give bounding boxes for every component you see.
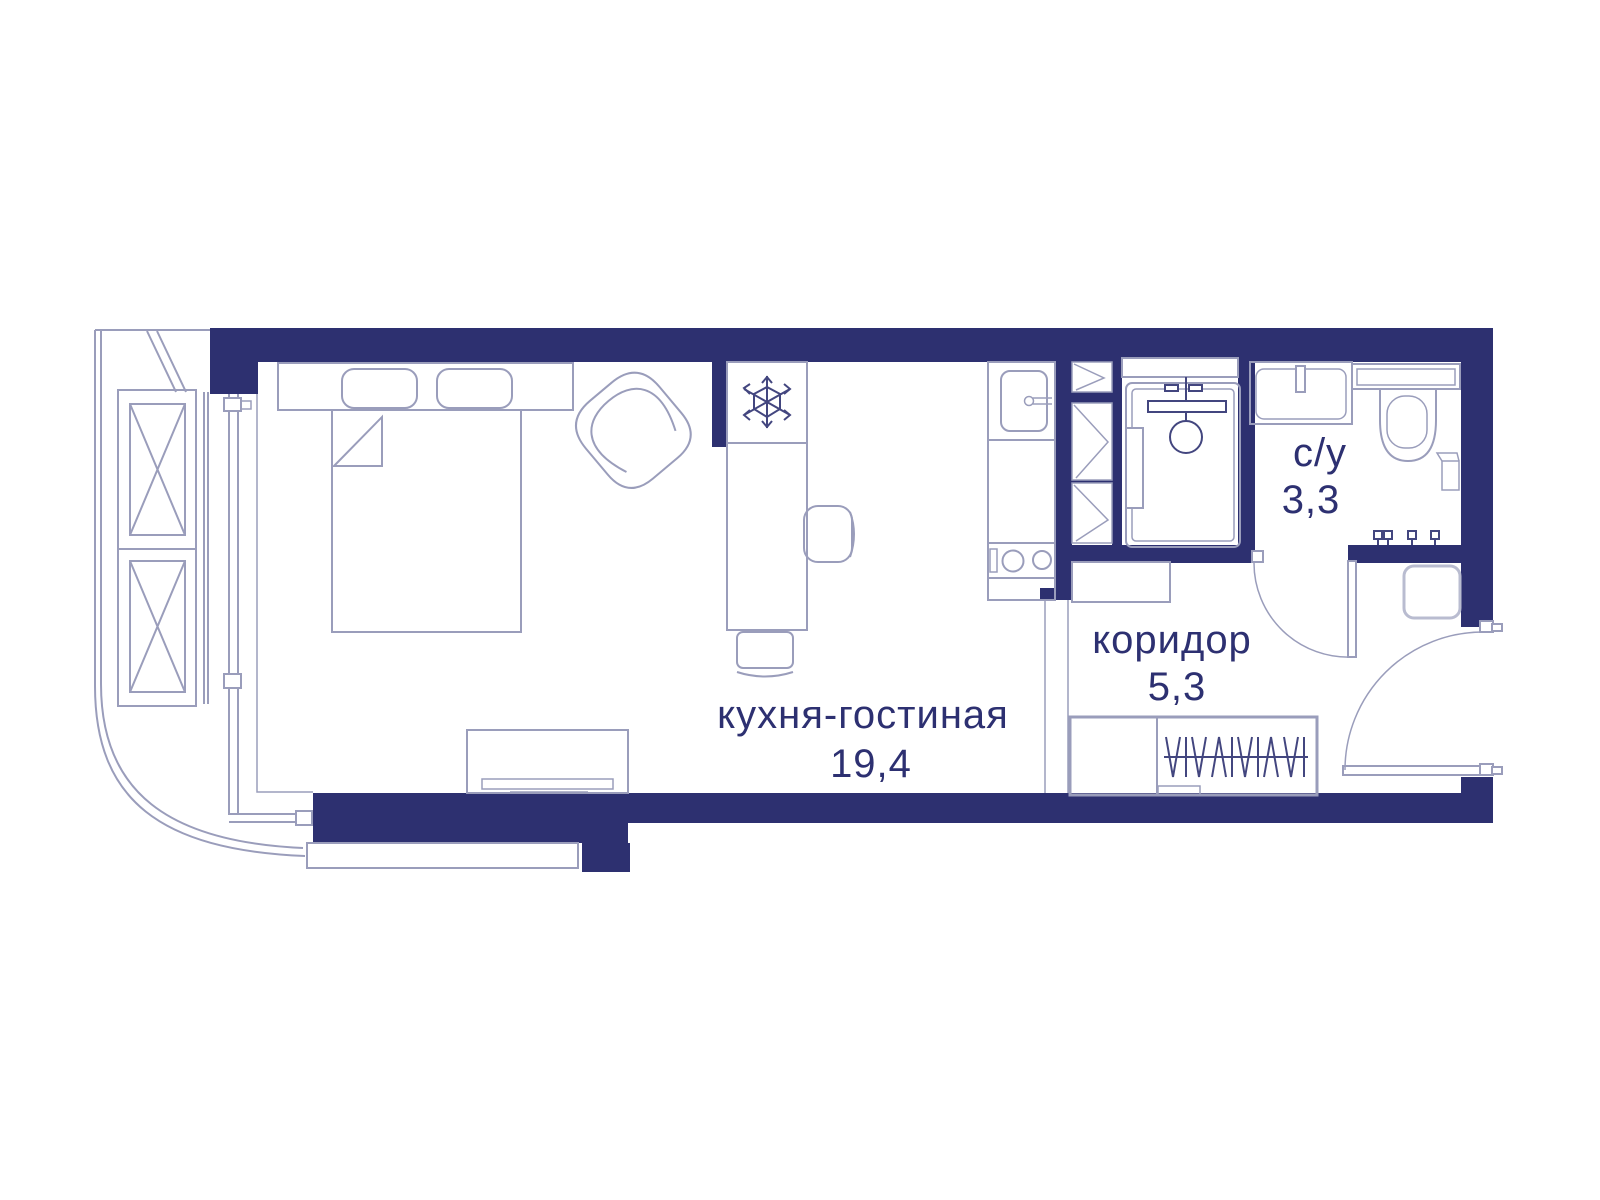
window-glazing-vertical (229, 394, 238, 815)
toilet-tank-inner (1357, 369, 1455, 385)
tv-unit (467, 730, 628, 793)
shaft-band-1 (1072, 392, 1112, 403)
shaft-panel-2-lines (1074, 405, 1108, 478)
island-chair (804, 506, 852, 562)
balcony (95, 330, 305, 856)
entrance-door-hinge-top (1492, 624, 1502, 631)
floor-plan-drawing: кухня-гостиная 19,4 коридор 5,3 с/у 3,3 (0, 0, 1600, 1200)
panoramic-window (224, 394, 313, 825)
bed-mattress (332, 410, 521, 632)
entrance-doormat (1404, 566, 1460, 618)
label-corridor-area: 5,3 (1148, 665, 1207, 709)
window-mullion-mid (224, 674, 241, 688)
window-mullion-top (224, 398, 241, 411)
wall-stub-fridge (712, 362, 727, 447)
corridor (1045, 562, 1460, 795)
shaft-panel-1-lines (1074, 364, 1104, 390)
wall-kitchen (1055, 362, 1072, 600)
pillow-right (437, 369, 512, 408)
label-kitchen-living-area: 19,4 (830, 742, 912, 786)
toilet-seat (1387, 396, 1427, 448)
label-kitchen-living-name: кухня-гостиная (717, 693, 1009, 737)
room-inner-edge-line (257, 394, 313, 792)
shower-bench (1126, 428, 1143, 508)
cooktop-panel (990, 549, 997, 572)
balcony-curve-inner (101, 684, 303, 848)
label-corridor-name: коридор (1092, 618, 1252, 662)
wall-right-upper (1461, 362, 1493, 627)
entrance-door-leaf (1343, 766, 1483, 775)
wall-shaft-right (1112, 362, 1122, 545)
shower-cabin (1122, 358, 1240, 547)
window-handle (241, 401, 251, 409)
corridor-threshold-lines (1045, 600, 1068, 793)
washing-machine (1072, 562, 1170, 602)
service-shaft (1072, 362, 1112, 543)
washbasin-faucet-icon (1296, 366, 1305, 392)
tv-screen (482, 779, 613, 789)
label-bathroom-name: с/у (1293, 431, 1347, 475)
armchair-back (578, 375, 681, 477)
balcony-panel-2-x (130, 561, 185, 692)
wall-top (210, 328, 1493, 362)
window-mullion-end (296, 811, 312, 825)
entrance-door-hinge-bottom (1492, 767, 1502, 774)
island-stool-back (737, 672, 793, 677)
wall-bottom-left (313, 793, 628, 843)
bed (278, 363, 573, 632)
armchair-outline (564, 361, 702, 499)
bed-headboard (278, 363, 573, 410)
shaft-panel-3 (1072, 483, 1112, 543)
armchair (564, 361, 702, 499)
wall-bathroom-bottom-right (1348, 545, 1461, 563)
balcony-panel-1-x (130, 404, 185, 535)
shaft-panel-2 (1072, 403, 1112, 480)
cooktop-burner-1 (1003, 551, 1024, 572)
sink-faucet-lines (1033, 398, 1052, 404)
cooktop-burner-2 (1033, 551, 1051, 569)
wall-bottom (628, 793, 1493, 823)
island-counter (727, 443, 807, 630)
wall-pier-top-left (210, 328, 258, 394)
balcony-inner-rail (204, 392, 208, 704)
bathroom-door-jamb (1252, 551, 1263, 562)
bathroom-door-leaf (1348, 561, 1356, 657)
towel-hook-icons (1374, 531, 1439, 545)
window-glazing-bottom (229, 814, 300, 822)
toilet-paper-holder-icon (1437, 453, 1459, 490)
shaft-panel-3-lines (1074, 485, 1108, 541)
pillow-left (342, 369, 417, 408)
kitchen-island (727, 443, 854, 677)
shower-shelf (1122, 358, 1238, 377)
label-bathroom-area: 3,3 (1282, 478, 1341, 522)
kitchen-counter (988, 362, 1055, 600)
bathroom-door-swing-arc (1254, 563, 1352, 657)
tv-stand (467, 730, 628, 793)
fridge (727, 362, 807, 443)
blanket-fold (334, 417, 382, 466)
counter-sections (988, 440, 1055, 578)
floor-plan-canvas: кухня-гостиная 19,4 коридор 5,3 с/у 3,3 (0, 0, 1600, 1200)
sink-faucet-icon (1025, 397, 1034, 406)
wall-bottom-step (582, 843, 630, 872)
balcony-divider-diagonal (147, 331, 186, 392)
entrance-door-swing-arc (1345, 632, 1484, 770)
clothes-hangers-icon (1164, 737, 1308, 777)
wall-ledge-outline (307, 843, 578, 868)
island-stool (737, 632, 793, 668)
